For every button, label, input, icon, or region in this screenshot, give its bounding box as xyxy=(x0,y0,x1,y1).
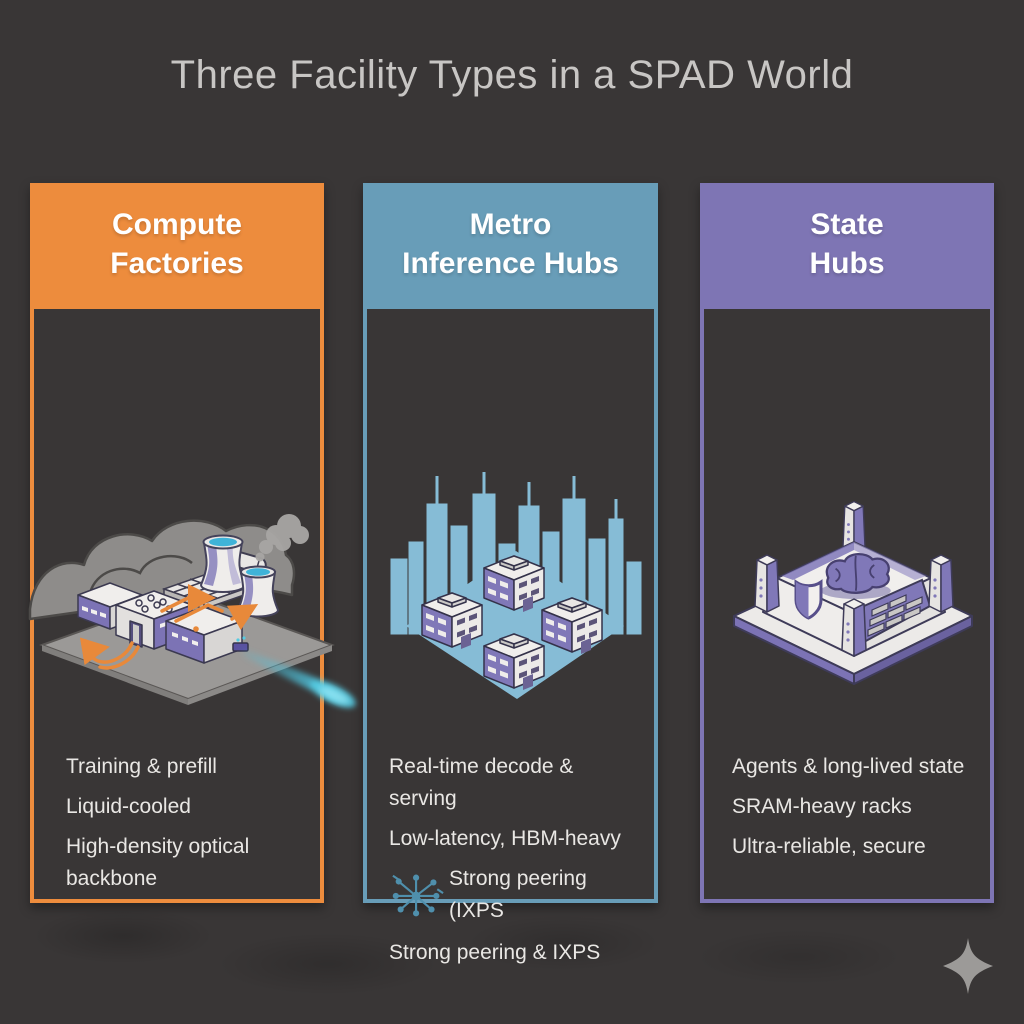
compute-factories-body: Training & prefill Liquid-cooled High-de… xyxy=(30,305,324,903)
bullet-item: Strong peering & IXPS xyxy=(389,937,642,969)
state-hubs-header: State Hubs xyxy=(700,183,994,305)
column-metro-inference-hubs: Metro Inference Hubs xyxy=(363,183,658,903)
bullet-item-with-icon: Strong peering (IXPS xyxy=(389,863,642,927)
header-line: Inference Hubs xyxy=(402,244,619,283)
state-hubs-bullets: Agents & long-lived state SRAM-heavy rac… xyxy=(704,751,990,871)
infographic-page: { "title": "Three Facility Types in a SP… xyxy=(0,0,1024,1024)
column-compute-factories: Compute Factories xyxy=(30,183,324,903)
fortress-tower xyxy=(842,599,866,656)
header-line: State xyxy=(810,205,883,244)
metro-city-illustration xyxy=(377,464,657,729)
fortress-tower xyxy=(755,555,779,612)
compute-factories-header: Compute Factories xyxy=(30,183,324,305)
bullet-text: Strong peering (IXPS xyxy=(449,863,642,927)
bullet-item: Low-latency, HBM-heavy xyxy=(389,823,642,855)
cooling-tower xyxy=(238,567,278,617)
bullet-item: Training & prefill xyxy=(66,751,304,783)
metro-inference-hubs-header: Metro Inference Hubs xyxy=(363,183,658,305)
state-hubs-body: Agents & long-lived state SRAM-heavy rac… xyxy=(700,305,994,903)
network-hub-icon xyxy=(391,870,445,920)
header-line: Metro xyxy=(470,205,552,244)
metro-inference-hubs-body: Real-time decode & serving Low-latency, … xyxy=(363,305,658,903)
state-fortress-illustration xyxy=(726,494,986,694)
header-line: Compute xyxy=(112,205,242,244)
header-line: Factories xyxy=(110,244,243,283)
bullet-item: Real-time decode & serving xyxy=(389,751,642,815)
sparkle-icon xyxy=(943,938,993,994)
bullet-item: Agents & long-lived state xyxy=(732,751,976,783)
cooling-tower xyxy=(201,536,245,593)
page-title: Three Facility Types in a SPAD World xyxy=(0,50,1024,100)
column-state-hubs: State Hubs xyxy=(700,183,994,903)
bullet-item: High-density optical backbone xyxy=(66,831,304,895)
metro-inference-hubs-bullets: Real-time decode & serving Low-latency, … xyxy=(367,751,654,977)
bullet-item: Ultra-reliable, secure xyxy=(732,831,976,863)
bullet-item: Liquid-cooled xyxy=(66,791,304,823)
header-line: Hubs xyxy=(810,244,885,283)
shield-icon xyxy=(796,582,821,618)
fortress-tower xyxy=(929,555,953,612)
bullet-item: SRAM-heavy racks xyxy=(732,791,976,823)
valve-dot xyxy=(193,626,199,632)
compute-factory-illustration xyxy=(36,497,336,727)
compute-factories-bullets: Training & prefill Liquid-cooled High-de… xyxy=(34,751,320,903)
